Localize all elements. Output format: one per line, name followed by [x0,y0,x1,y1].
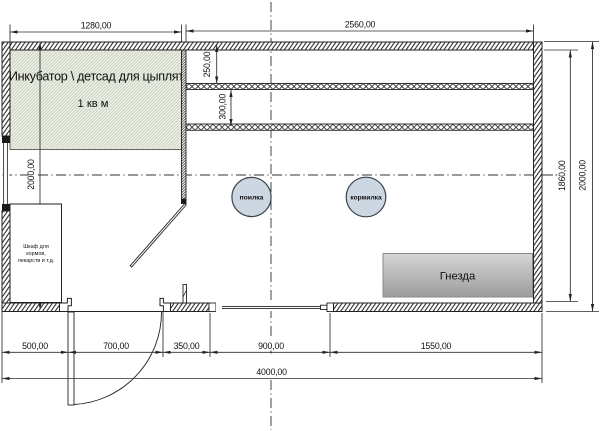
svg-text:поилка: поилка [240,195,264,202]
svg-text:2560,00: 2560,00 [345,20,376,30]
svg-text:лекарств и т.д.: лекарств и т.д. [18,258,55,264]
svg-text:Гнезда: Гнезда [440,271,476,283]
svg-text:4000,00: 4000,00 [256,367,287,377]
svg-text:Шкаф для: Шкаф для [23,244,49,250]
svg-text:Инкубатор \ детсад для цыплят: Инкубатор \ детсад для цыплят [9,70,184,84]
svg-text:1860,00: 1860,00 [557,160,567,191]
svg-text:1550,00: 1550,00 [421,341,452,351]
svg-text:500,00: 500,00 [22,341,48,351]
svg-text:2000,00: 2000,00 [26,159,36,190]
svg-text:1280,00: 1280,00 [81,21,112,31]
svg-text:300,00: 300,00 [218,94,228,120]
svg-text:900,00: 900,00 [258,341,284,351]
svg-text:кормов,: кормов, [26,251,46,257]
svg-text:250,00: 250,00 [202,51,212,77]
svg-text:1 кв м: 1 кв м [78,98,109,110]
svg-text:700,00: 700,00 [103,341,129,351]
svg-text:кормилка: кормилка [350,195,382,202]
svg-text:2000,00: 2000,00 [578,160,588,191]
svg-text:350,00: 350,00 [174,341,200,351]
